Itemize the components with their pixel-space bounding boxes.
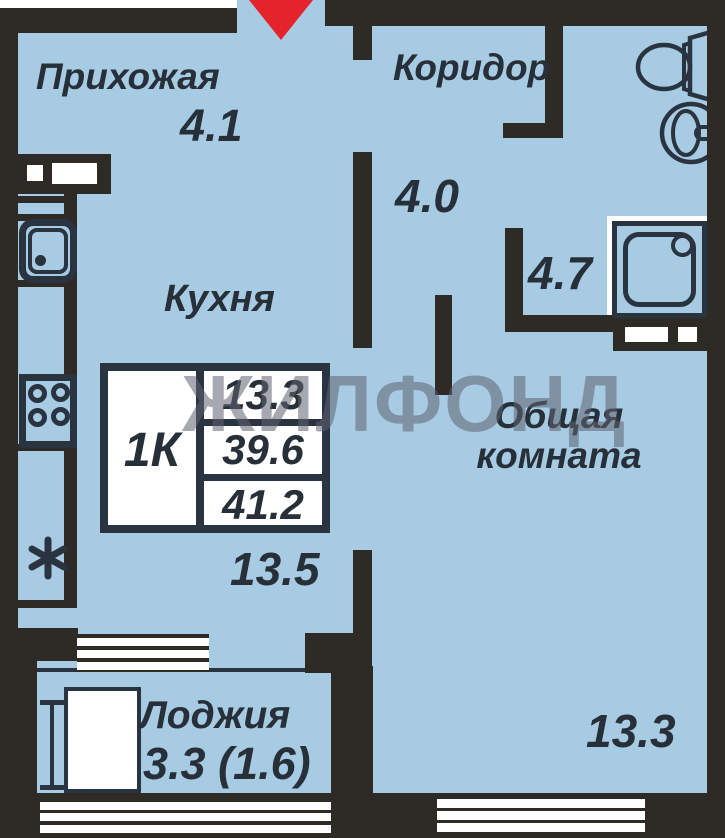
wall-kitchen-loggia <box>18 628 78 661</box>
area-label-bathroom: 4.7 <box>528 249 592 297</box>
asterisk-symbol <box>28 538 68 578</box>
room-label-hallway: Прихожая <box>36 58 220 97</box>
dimension-marker-icon <box>40 700 65 790</box>
wall-top-left <box>0 8 237 33</box>
room-label-corridor: Коридор <box>393 49 550 88</box>
window-slat <box>437 823 645 832</box>
sink-drain <box>35 255 46 266</box>
kitchen-sink-icon <box>19 219 77 283</box>
wall-wc-jamb <box>503 123 563 138</box>
dimension-cap <box>40 700 65 705</box>
window-slat <box>77 650 209 658</box>
table-divider <box>204 474 322 481</box>
entrance-arrow-icon <box>249 0 313 40</box>
watermark: ЖИЛФОНД <box>182 364 627 444</box>
dimension-line <box>50 702 54 788</box>
toilet-icon <box>632 30 717 105</box>
area-label-kitchen: 13.5 <box>230 545 320 593</box>
room-label-kitchen: Кухня <box>164 280 275 320</box>
stove-icon <box>19 374 77 448</box>
wall-hall-stub <box>353 26 372 60</box>
wall-bathroom-jamb <box>505 315 613 332</box>
wall-hall-partition <box>353 152 372 348</box>
counter-end <box>18 600 77 608</box>
window-slat <box>437 799 645 808</box>
window-slat <box>40 802 331 810</box>
window-loggia <box>40 800 331 834</box>
cabinet-panel <box>678 327 697 342</box>
sink-basin <box>28 228 68 274</box>
wall-room-divider-upper <box>353 550 372 640</box>
wall-room-divider-lower <box>331 666 373 793</box>
area-label-living-room: 13.3 <box>586 707 676 755</box>
area-label-corridor: 4.0 <box>395 172 459 220</box>
cabinet-panel <box>52 163 97 184</box>
burner-icon <box>51 383 70 402</box>
window-living-room <box>437 796 645 834</box>
burner-icon <box>28 408 47 427</box>
window-slat <box>77 662 209 670</box>
area-label-hallway: 4.1 <box>180 102 243 149</box>
window-slat <box>40 825 331 833</box>
total-area-value: 41.2 <box>204 481 322 529</box>
bathroom-cabinet <box>613 318 707 351</box>
wall-top-right <box>325 0 707 26</box>
burner-icon <box>28 384 47 403</box>
counter-divider <box>18 196 64 203</box>
window-slat <box>77 638 209 646</box>
shower-tray-icon <box>612 221 707 318</box>
wall-right <box>707 0 725 838</box>
floor-plan: 1К 13.3 39.6 41.2 Прихожая 4.1 Коридор 4… <box>0 0 725 838</box>
area-label-loggia: 3.3 (1.6) <box>143 740 311 787</box>
window-slat <box>437 811 645 820</box>
shower-drain-icon <box>671 234 694 257</box>
cabinet-panel <box>625 327 668 342</box>
cabinet-panel <box>27 165 43 181</box>
room-label-loggia: Лоджия <box>140 696 290 737</box>
burner-icon <box>51 407 70 426</box>
dimension-cap <box>40 785 65 790</box>
hallway-cabinet <box>18 154 111 194</box>
balcony-door <box>64 687 141 793</box>
window-slat <box>40 813 331 821</box>
page-margin <box>0 0 237 8</box>
window-kitchen-loggia <box>77 634 209 672</box>
